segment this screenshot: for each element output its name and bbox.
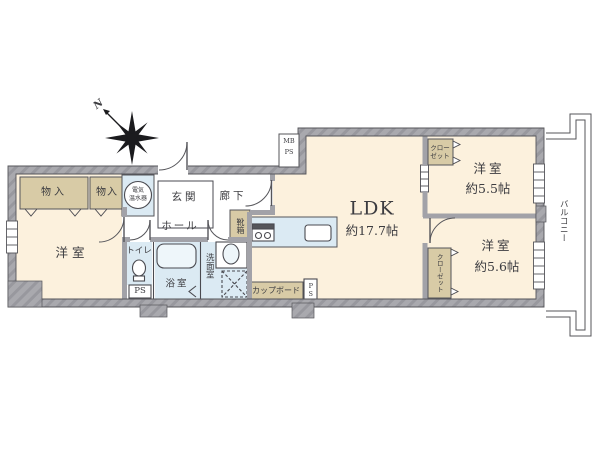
toilet-ps-label: PS — [134, 287, 146, 296]
kitchen-sink-icon — [305, 225, 331, 241]
cupboard-ps-label: PS — [307, 282, 314, 298]
bedroom-bottom-right-size-label: 約5.6帖 — [475, 261, 520, 274]
toilet-icon — [133, 260, 146, 276]
window-bottom-right-bedroom — [534, 242, 545, 289]
ldk-size-label: 約17.7帖 — [346, 225, 399, 238]
corridor-ldk-door — [246, 180, 272, 206]
bedroom-top-right-size-label: 約5.5帖 — [466, 183, 511, 196]
bedroom-bottom-right-label: 洋室 — [481, 240, 512, 253]
water-heater-label-1: 電気 — [132, 188, 144, 194]
window-left-bedroom — [7, 221, 18, 253]
water-heater-label-2: 温水器 — [129, 196, 147, 202]
ldk-label: LDK — [349, 200, 394, 219]
floorplan-drawing — [0, 0, 600, 450]
compass-icon — [103, 109, 159, 165]
storage-left-label: 物入 — [41, 188, 67, 198]
washroom-label: 洗面室 — [205, 253, 214, 279]
stove-icon — [252, 224, 274, 241]
balcony-label: バルコニー — [559, 200, 568, 243]
storage-right-label: 物入 — [96, 188, 118, 198]
shoe-box-label: 靴箱 — [236, 218, 244, 234]
hall-label: ホール — [161, 221, 199, 232]
corridor-label: 廊下 — [220, 191, 247, 202]
meter-box-label: MB — [283, 138, 294, 145]
toilet-label: トイレ — [126, 247, 152, 256]
bedroom-left-label: 洋室 — [55, 247, 88, 260]
sink-icon — [223, 244, 239, 264]
bathtub-icon — [157, 244, 196, 268]
bathroom-label: 浴室 — [165, 279, 188, 289]
closet-top-label-1: クロー — [430, 145, 450, 152]
toilet-door — [130, 220, 150, 240]
bedroom-top-right-label: 洋室 — [473, 163, 504, 176]
sliding-door — [421, 165, 429, 192]
entrance-label: 玄関 — [172, 192, 199, 203]
cupboard-label: カップボード — [252, 287, 300, 295]
closet-bottom-label: クローゼット — [436, 254, 443, 293]
washroom-door — [208, 220, 228, 240]
closet-top-label-2: ゼット — [430, 153, 450, 160]
window-top-right-bedroom — [534, 164, 545, 203]
pipe-space-top-label: PS — [285, 149, 294, 156]
floorplan: N MB PS 物入 物入 電気 温水器 玄関 廊下 ホール 靴箱 洋室 トイレ… — [0, 0, 600, 450]
